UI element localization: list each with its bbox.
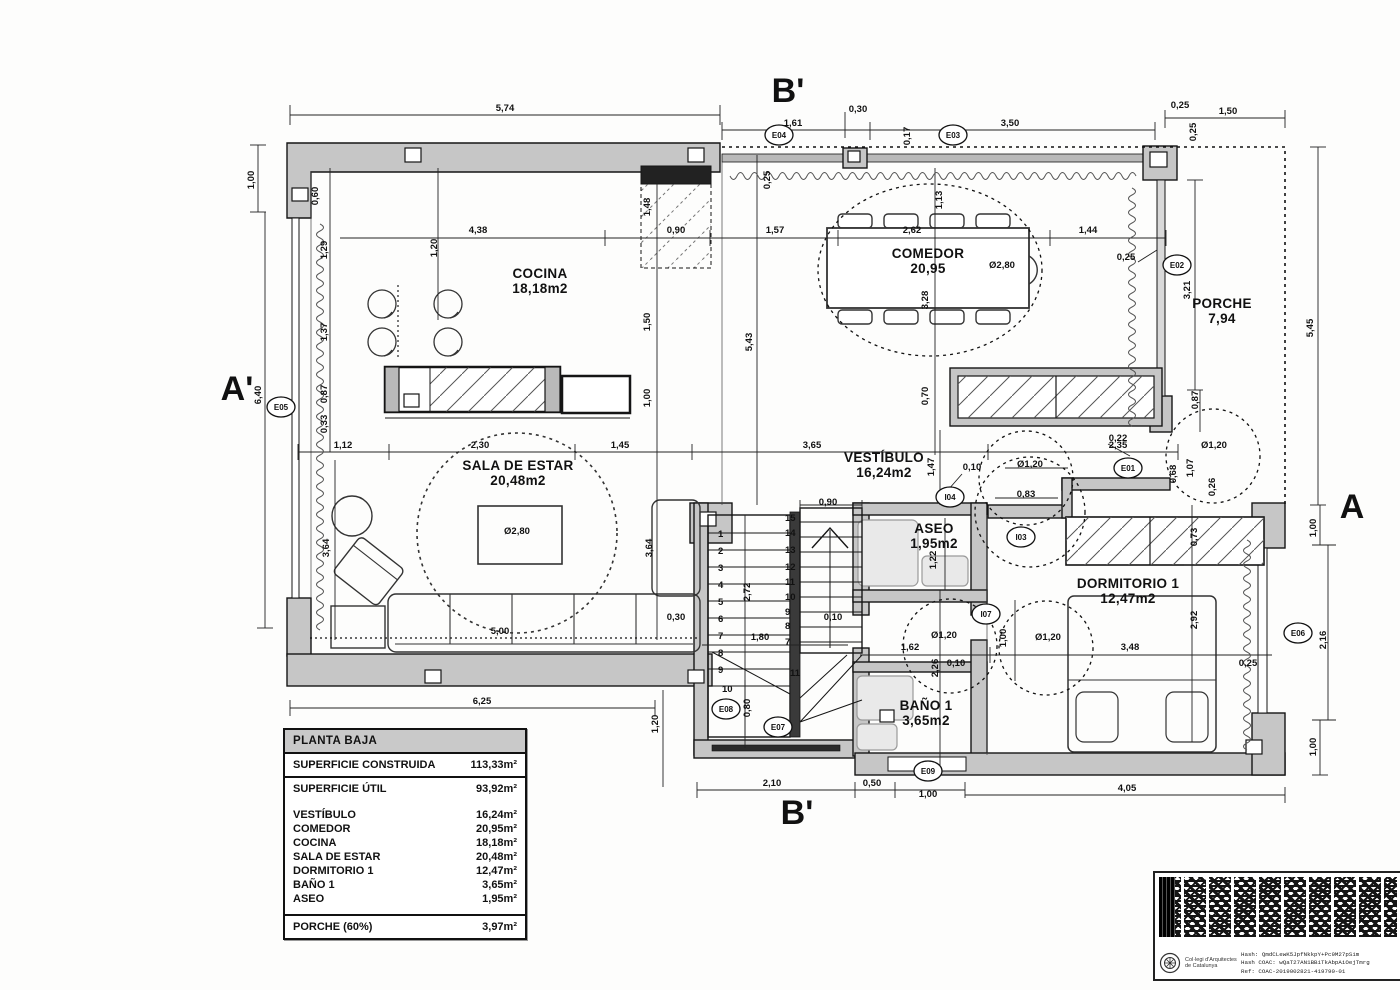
dim-label: 1,29 [319, 241, 330, 260]
dim-label: 0,22 [1109, 433, 1128, 444]
stair-number: 12 [785, 562, 796, 573]
dim-label: 0,26 [1207, 478, 1218, 497]
stair-number: 1 [718, 529, 724, 540]
section-marker: B' [781, 794, 814, 832]
room-area-label: 1,95m2 [910, 536, 958, 551]
dim-label: 0,60 [310, 187, 321, 206]
dim-label: 1,37 [319, 323, 330, 342]
dim-label: 1,80 [751, 632, 770, 643]
dim-label: Ø1,20 [931, 630, 957, 641]
dim-label: 3,50 [1001, 118, 1020, 129]
room-area-label: 18,18m2 [512, 281, 567, 296]
dim-label: 3,28 [920, 291, 931, 310]
dim-label: 0,30 [667, 612, 686, 623]
dim-label: 2,72 [742, 583, 753, 602]
room-area-label: 20,48m2 [490, 473, 545, 488]
stair-number: 8 [718, 648, 723, 659]
element-marker-label: I07 [980, 610, 992, 619]
legend-row-util: SUPERFICIE ÚTIL 93,92m² [285, 776, 525, 800]
element-marker-label: E07 [771, 723, 786, 732]
room-name-label: VESTÍBULO [844, 450, 924, 465]
dim-label: 1,50 [642, 313, 653, 332]
stair-number: 10 [722, 684, 733, 695]
element-marker-label: E02 [1170, 261, 1185, 270]
dim-label: 0,87 [1190, 391, 1201, 410]
legend-row: VESTÍBULO16,24m² [285, 808, 525, 822]
dim-label: 1,20 [429, 239, 440, 258]
room-name-label: COCINA [512, 266, 567, 281]
dim-label: 0,83 [1017, 489, 1036, 500]
dim-label: 2,10 [763, 778, 782, 789]
stair-number: 7 [718, 631, 723, 642]
dim-label: 3,64 [321, 538, 332, 557]
room-area-label: 3,65m2 [902, 713, 950, 728]
room-name-label: DORMITORIO 1 [1077, 576, 1180, 591]
dim-label: 0,10 [963, 462, 982, 473]
dim-label: 1,47 [926, 458, 937, 477]
dim-label: 0,33 [319, 415, 330, 434]
room-area-label: 7,94 [1208, 311, 1236, 326]
room-area-label: 16,24m2 [856, 465, 911, 480]
room-name-label: PORCHE [1192, 296, 1252, 311]
stair-number: 11 [790, 668, 801, 679]
legend-row: SALA DE ESTAR20,48m² [285, 850, 525, 864]
stair-number: 5 [718, 597, 724, 608]
element-marker-label: I03 [1015, 533, 1027, 542]
dim-label: 6,25 [473, 696, 492, 707]
stair-number: 9 [718, 665, 723, 676]
stair-number: 15 [785, 513, 796, 524]
legend-row: ASEO1,95m² [285, 892, 525, 906]
dim-label: 1,00 [919, 789, 938, 800]
dim-label: Ø1,20 [1017, 459, 1043, 470]
dim-label: 0,73 [1189, 528, 1200, 547]
dim-label: 0,25 [1117, 252, 1136, 263]
stair-number: 10 [785, 592, 796, 603]
dim-label: 5,74 [496, 103, 515, 114]
dim-label: 2,26 [930, 659, 941, 678]
dim-label: 2,16 [1318, 631, 1329, 650]
room-name-label: SALA DE ESTAR [462, 458, 573, 473]
section-marker: B' [772, 72, 805, 110]
dim-label: 0,80 [742, 699, 753, 718]
dim-label: 0,90 [667, 225, 686, 236]
stair-number: 7 [785, 637, 790, 648]
dim-label: 0,25 [762, 170, 773, 189]
kitchen-stools [368, 285, 462, 360]
section-marker: A [1340, 488, 1365, 526]
stair-number: 14 [785, 528, 796, 539]
stamp-hash-text: Hash: QmdCLewK5JpfNkkpY+Pc9M27pSim Hash … [1241, 951, 1397, 976]
legend-title: PLANTA BAJA [285, 730, 525, 754]
element-marker-label: E01 [1121, 464, 1136, 473]
dim-label: 0,25 [1188, 122, 1199, 141]
stair-number: 9 [785, 607, 790, 618]
room-name-label: ASEO [914, 521, 953, 536]
stair-number: 8 [785, 621, 790, 632]
area-legend-table: PLANTA BAJA SUPERFICIE CONSTRUIDA 113,33… [283, 728, 527, 940]
element-marker-label: E04 [772, 131, 787, 140]
dim-label: Ø2,80 [504, 526, 530, 537]
dim-label: 1,00 [998, 629, 1009, 648]
dim-label: 2,92 [1189, 611, 1200, 630]
window-wave [1244, 540, 1251, 750]
window-wave [730, 173, 1136, 180]
kitchen-counter [385, 367, 630, 418]
dim-label: 3,65 [803, 440, 822, 451]
section-marker: A' [221, 370, 254, 408]
stair-number: 3 [718, 563, 723, 574]
dim-label: 1,22 [928, 551, 939, 570]
legend-row: COMEDOR20,95m² [285, 822, 525, 836]
dim-label: 1,20 [650, 715, 661, 734]
dim-label: 0,25 [1171, 100, 1190, 111]
dim-label: 1,00 [642, 389, 653, 408]
dim-label: 1,44 [1079, 225, 1098, 236]
dim-label: 1,50 [1219, 106, 1238, 117]
room-name-label: BAÑO 1 [900, 698, 953, 713]
dim-label: 5,45 [1305, 318, 1316, 337]
dim-label: 0,68 [1168, 465, 1179, 484]
element-marker-label: E05 [274, 403, 289, 412]
dim-label: 1,45 [611, 440, 630, 451]
dim-label: 0,17 [902, 127, 913, 146]
element-marker-label: E03 [946, 131, 961, 140]
dim-label: 0,87 [319, 385, 330, 404]
element-marker-label: E09 [921, 767, 936, 776]
bedroom-furniture [1066, 517, 1264, 752]
dim-label: 1,00 [1308, 738, 1319, 757]
legend-row-porche: PORCHE (60%)3,97m² [285, 914, 525, 938]
dim-label: 0,25 [1239, 658, 1258, 669]
dim-label: 1,57 [766, 225, 785, 236]
dim-label: 0,10 [824, 612, 843, 623]
dim-label: 0,50 [863, 778, 882, 789]
stair-number: 4 [718, 580, 724, 591]
dim-label: 1,62 [901, 642, 920, 653]
dim-label: 0,30 [849, 104, 868, 115]
dim-label: Ø2,80 [989, 260, 1015, 271]
room-area-label: 20,95 [910, 261, 945, 276]
floorplan-sheet: { "legend": { "title": "PLANTA BAJA", "c… [0, 0, 1400, 990]
coac-validation-stamp: Col·legi d'Arquitectes de Catalunya Hash… [1153, 871, 1400, 981]
legend-row: COCINA18,18m² [285, 836, 525, 850]
stair-number: 6 [718, 614, 723, 625]
element-marker-label: I04 [944, 493, 956, 502]
dim-label: 1,13 [934, 191, 945, 210]
element-marker-label: E06 [1291, 629, 1306, 638]
dim-label: 1,12 [334, 440, 353, 451]
dim-label: 3,48 [1121, 642, 1140, 653]
coac-org-name: Col·legi d'Arquitectes de Catalunya [1185, 957, 1237, 970]
coac-seal-icon [1159, 952, 1181, 974]
barcode-icon [1159, 877, 1397, 937]
dim-label: 0,70 [920, 387, 931, 406]
legend-row-construida: SUPERFICIE CONSTRUIDA 113,33m² [285, 754, 525, 776]
dim-label: 6,40 [253, 386, 264, 405]
dim-label: 1,00 [246, 171, 257, 190]
stair-number: 2 [718, 546, 723, 557]
dim-label: 2,62 [903, 225, 922, 236]
dim-label: 0,90 [819, 497, 838, 508]
dim-label: 1,48 [642, 198, 653, 217]
dim-label: 0,10 [947, 658, 966, 669]
room-name-label: COMEDOR [892, 246, 965, 261]
dim-label: 3,64 [644, 538, 655, 557]
floorplan-drawing: 5,741,610,303,500,251,500,250,170,251,00… [0, 0, 1400, 990]
dim-label: 1,00 [1308, 519, 1319, 538]
dim-label: 5,43 [744, 333, 755, 352]
dim-label: 2,30 [471, 440, 490, 451]
dim-label: 4,05 [1118, 783, 1137, 794]
dim-label: 4,38 [469, 225, 488, 236]
dim-label: Ø1,20 [1035, 632, 1061, 643]
dim-label: 5,00 [491, 626, 510, 637]
stair-number: 13 [785, 545, 796, 556]
dim-label: 1,07 [1185, 459, 1196, 478]
room-area-label: 12,47m2 [1100, 591, 1155, 606]
legend-row: BAÑO 13,65m² [285, 878, 525, 892]
legend-row: DORMITORIO 112,47m² [285, 864, 525, 878]
stair-number: 11 [785, 577, 796, 588]
dim-label: Ø1,20 [1201, 440, 1227, 451]
porche-boundary [722, 147, 1285, 505]
element-marker-label: E08 [719, 705, 734, 714]
